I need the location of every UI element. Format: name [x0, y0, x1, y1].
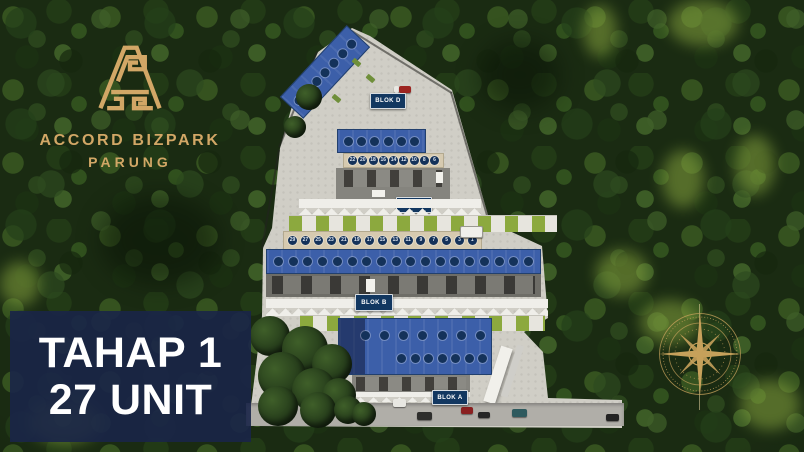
- accord-monogram-icon: [87, 36, 173, 124]
- unit-number-badge: 6: [430, 156, 439, 165]
- unit-number-badge: 17: [365, 236, 374, 245]
- vehicle: [393, 399, 406, 407]
- brand-location: PARUNG: [28, 154, 232, 170]
- tree-clump: [296, 84, 322, 110]
- unit-number-badge: 8: [420, 156, 429, 165]
- unit-badge: [361, 331, 370, 340]
- unit-badge: [411, 354, 420, 363]
- unit-number-badge: 14: [389, 156, 398, 165]
- unit-badge: [495, 257, 504, 266]
- unit-badge: [327, 56, 340, 69]
- vehicle: [606, 414, 619, 421]
- tree-clump: [352, 402, 376, 426]
- unit-number-badge: 25: [314, 236, 323, 245]
- block-b-facade: [266, 274, 541, 297]
- unit-badge: [480, 257, 489, 266]
- white-van: [372, 190, 385, 197]
- blok-d-sign: BLOK D: [370, 93, 406, 109]
- unit-badge: [380, 331, 389, 340]
- unit-badge: [418, 331, 427, 340]
- brand-lockup: ACCORD BIZPARK PARUNG: [28, 36, 232, 170]
- unit-badge: [377, 257, 386, 266]
- unit-badge: [370, 137, 379, 146]
- unit-badge: [399, 331, 408, 340]
- unit-number-badge: 29: [288, 236, 297, 245]
- front-yard-strip: [289, 215, 557, 232]
- block-c-unit-number-row: 2220181614121086: [343, 153, 444, 168]
- unit-badge: [421, 257, 430, 266]
- unit-badge: [274, 257, 283, 266]
- unit-badge: [465, 257, 474, 266]
- unit-badge: [476, 331, 485, 340]
- unit-number-badge: 18: [369, 156, 378, 165]
- unit-badge: [289, 257, 298, 266]
- unit-number-badge: 10: [410, 156, 419, 165]
- unit-badge: [406, 257, 415, 266]
- unit-badge: [451, 354, 460, 363]
- unit-badge: [478, 354, 487, 363]
- unit-number-badge: 22: [348, 156, 357, 165]
- block-b-roof: [266, 249, 541, 274]
- vehicle: [417, 412, 432, 420]
- unit-number-badge: 23: [327, 236, 336, 245]
- vehicle: [461, 407, 473, 414]
- unit-badge: [303, 257, 312, 266]
- block-c-facade: [336, 168, 450, 199]
- block-a-roof: [338, 318, 492, 375]
- unit-badge: [509, 257, 518, 266]
- blok-b-sign: BLOK B: [355, 294, 393, 311]
- rooftop-vent: [436, 172, 443, 183]
- canopy-row: [299, 199, 481, 216]
- box-truck: [460, 226, 483, 238]
- unit-badge: [336, 47, 349, 60]
- blok-a-sign: BLOK A: [432, 390, 468, 405]
- unit-badge: [524, 257, 533, 266]
- unit-badge: [397, 354, 406, 363]
- unit-badge: [357, 137, 366, 146]
- unit-count-label: 27 UNIT: [49, 377, 213, 423]
- garage-doors: [272, 276, 535, 294]
- garage-doors: [356, 377, 466, 391]
- unit-number-badge: 13: [391, 236, 400, 245]
- unit-badge: [410, 137, 419, 146]
- vehicle: [512, 409, 527, 417]
- unit-badge: [438, 354, 447, 363]
- tree-clump: [284, 116, 306, 138]
- white-door: [366, 279, 375, 292]
- unit-badge: [465, 354, 474, 363]
- unit-badge: [436, 257, 445, 266]
- unit-badge: [348, 257, 357, 266]
- unit-number-badge: 15: [378, 236, 387, 245]
- unit-badge: [397, 137, 406, 146]
- block-c-roof: [337, 129, 426, 153]
- unit-number-badge: 20: [358, 156, 367, 165]
- unit-badge: [384, 137, 393, 146]
- unit-badge: [318, 257, 327, 266]
- unit-number-badge: 16: [379, 156, 388, 165]
- unit-number-badge: 9: [416, 236, 425, 245]
- unit-badge: [450, 257, 459, 266]
- unit-number-badge: 19: [352, 236, 361, 245]
- unit-badge: [319, 66, 332, 79]
- unit-badge: [333, 257, 342, 266]
- unit-number-badge: 12: [399, 156, 408, 165]
- unit-badge: [345, 38, 358, 51]
- aerial-siteplan-poster: BLOK D 2220181614121086 BLOK C 292725232…: [0, 0, 804, 452]
- phase-label: TAHAP 1: [39, 330, 223, 376]
- garage-doors: [344, 170, 442, 187]
- unit-badge: [438, 331, 447, 340]
- compass-rose-icon: [657, 311, 743, 397]
- unit-number-badge: 21: [339, 236, 348, 245]
- vehicle: [478, 412, 490, 418]
- brand-name: ACCORD BIZPARK: [28, 132, 232, 150]
- unit-badge: [362, 257, 371, 266]
- tree-clump: [300, 392, 336, 428]
- unit-badge: [344, 137, 353, 146]
- unit-number-badge: 11: [404, 236, 413, 245]
- unit-number-badge: 7: [429, 236, 438, 245]
- unit-badge: [457, 331, 466, 340]
- container-truck: [399, 86, 411, 93]
- unit-number-badge: 5: [442, 236, 451, 245]
- tree-clump: [258, 386, 298, 426]
- canopy-row: [266, 299, 548, 316]
- unit-number-badge: 27: [301, 236, 310, 245]
- phase-banner: TAHAP 1 27 UNIT: [10, 311, 251, 442]
- unit-badge: [392, 257, 401, 266]
- mid-unit-number-row: 2927252321191715131197531: [283, 231, 482, 250]
- unit-badge: [424, 354, 433, 363]
